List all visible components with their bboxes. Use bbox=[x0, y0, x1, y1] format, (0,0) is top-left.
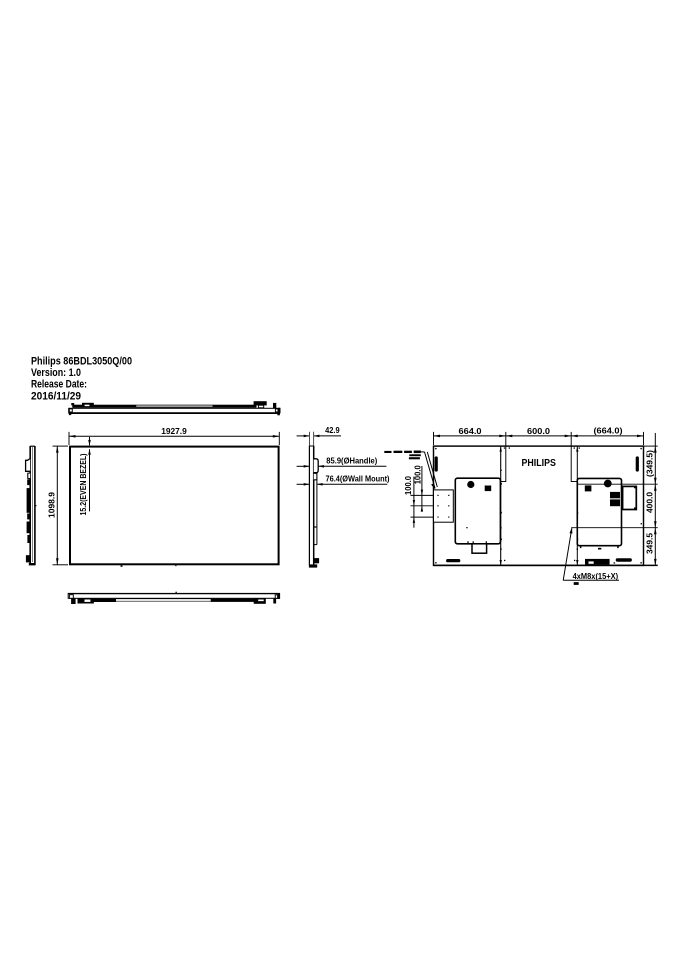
svg-text:15.2(EVEN BEZEL): 15.2(EVEN BEZEL) bbox=[79, 453, 88, 515]
svg-text:(349.5): (349.5) bbox=[645, 450, 654, 477]
svg-text:349.5: 349.5 bbox=[645, 533, 654, 554]
svg-text:Version: 1.0: Version: 1.0 bbox=[31, 367, 81, 379]
svg-text:100.0: 100.0 bbox=[414, 465, 423, 484]
svg-text:PHILIPS: PHILIPS bbox=[522, 458, 557, 469]
svg-text:76.4(ØWall Mount): 76.4(ØWall Mount) bbox=[326, 475, 390, 484]
svg-text:100.0: 100.0 bbox=[404, 476, 413, 495]
svg-text:42.9: 42.9 bbox=[325, 426, 340, 435]
svg-text:2016/11/29: 2016/11/29 bbox=[31, 390, 81, 402]
svg-text:600.0: 600.0 bbox=[527, 427, 550, 436]
svg-text:85.9(ØHandle): 85.9(ØHandle) bbox=[326, 456, 377, 465]
svg-text:Release Date:: Release Date: bbox=[31, 379, 87, 391]
svg-text:4xM8x(15+X): 4xM8x(15+X) bbox=[573, 572, 619, 581]
svg-text:1927.9: 1927.9 bbox=[161, 427, 187, 436]
svg-text:664.0: 664.0 bbox=[459, 427, 482, 436]
svg-text:400.0: 400.0 bbox=[645, 492, 654, 513]
svg-text:(664.0): (664.0) bbox=[594, 427, 623, 436]
svg-text:Philips 86BDL3050Q/00: Philips 86BDL3050Q/00 bbox=[31, 356, 132, 368]
svg-text:1098.9: 1098.9 bbox=[48, 492, 57, 518]
